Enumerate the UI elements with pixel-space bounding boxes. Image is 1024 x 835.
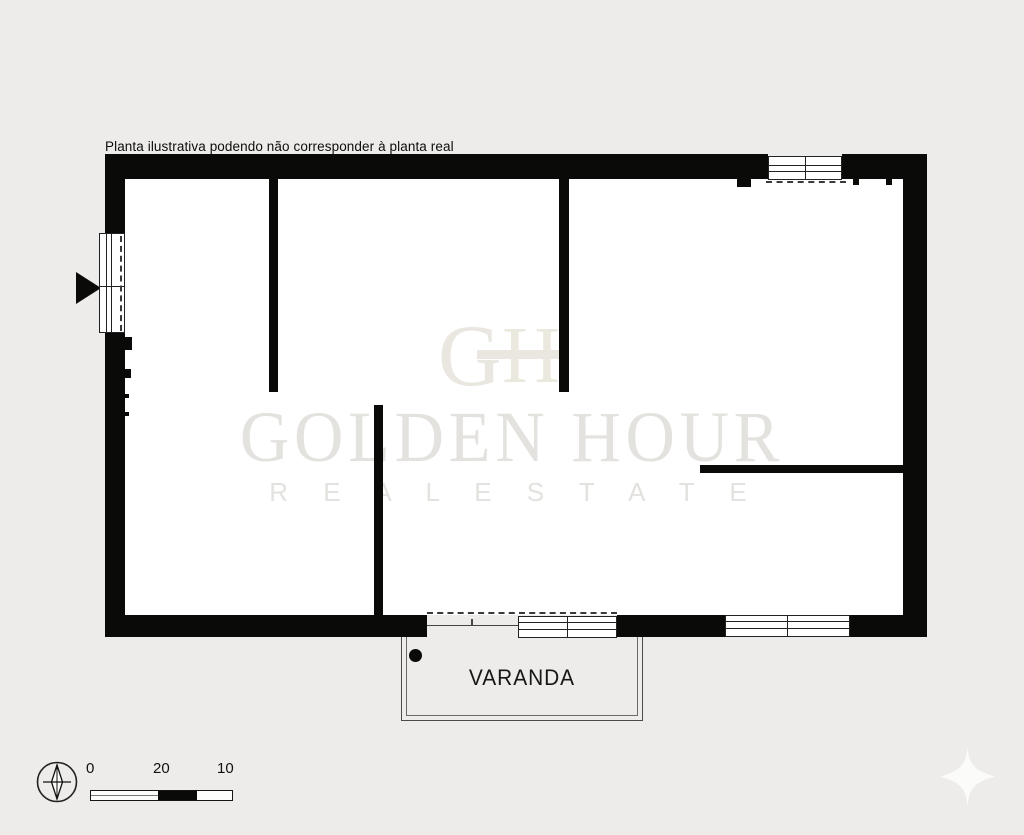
- wall-bottom-left: [105, 615, 427, 637]
- entrance-arrow-icon: [76, 272, 101, 304]
- wall-bottom-right: [850, 615, 927, 637]
- interior-wall-1: [269, 179, 278, 392]
- wall-bottom-middle: [617, 615, 725, 637]
- sparkle-icon: [940, 747, 995, 806]
- scale-label-10: 10: [217, 760, 234, 777]
- wall-stub-top: [737, 179, 751, 187]
- watermark-monogram-bar: [477, 350, 567, 359]
- wall-left-lower: [105, 333, 125, 637]
- interior-wall-3: [374, 405, 383, 617]
- wall-stub-left-b: [125, 369, 131, 378]
- window-bottom-2: [725, 615, 850, 637]
- balcony-opening-dash: [427, 612, 617, 614]
- wall-tick-left-a: [125, 394, 129, 398]
- balcony-door-tick: [471, 619, 473, 626]
- wall-stub-left-a: [125, 337, 132, 350]
- watermark-subtitle: R E A L E S T A T E: [100, 477, 930, 508]
- wall-tick-left-b: [125, 412, 129, 416]
- scale-bar: [90, 790, 233, 801]
- wall-tick-top-b: [886, 179, 892, 185]
- interior-wall-4: [700, 465, 903, 473]
- window-left-dash: [120, 236, 122, 331]
- scale-bar-fill: [158, 791, 197, 800]
- balcony-dot: [409, 649, 422, 662]
- window-bottom-1: [518, 616, 617, 638]
- scale-label-20: 20: [153, 760, 170, 777]
- compass-north-icon: [36, 761, 78, 803]
- window-top-dash: [766, 181, 846, 183]
- balcony-label: VARANDA: [407, 665, 637, 691]
- scale-bar-midline: [91, 795, 158, 796]
- scale-label-0: 0: [86, 760, 94, 777]
- wall-top-left: [105, 154, 768, 179]
- window-top: [768, 156, 842, 180]
- wall-left-upper: [105, 154, 125, 233]
- disclaimer-text: Planta ilustrativa podendo não correspon…: [105, 139, 454, 154]
- floor-plan-page: { "disclaimer": "Planta ilustrativa pode…: [0, 0, 1024, 835]
- wall-right: [903, 154, 927, 637]
- wall-tick-top-a: [853, 179, 859, 185]
- interior-wall-2: [559, 179, 569, 392]
